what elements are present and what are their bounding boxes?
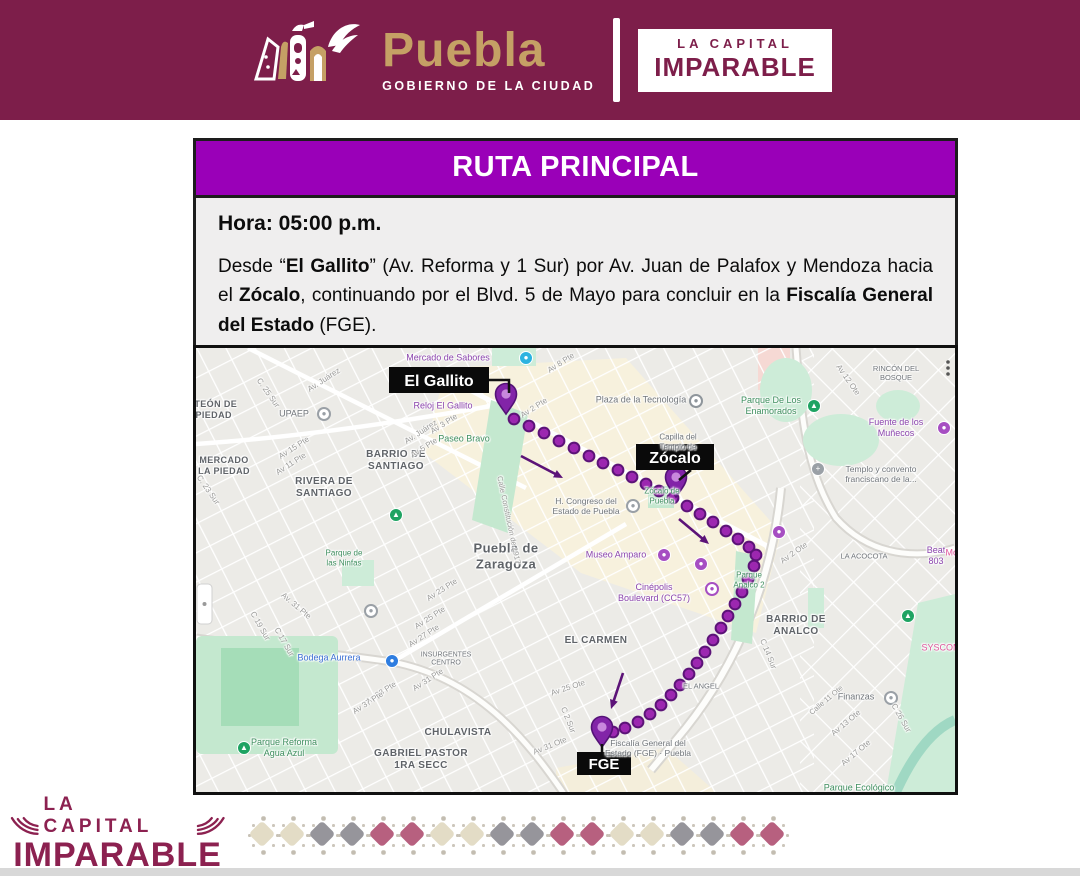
route-dot <box>708 635 719 646</box>
route-dot <box>539 428 550 439</box>
route-dot <box>645 709 656 720</box>
pattern-diamond-rose <box>367 808 397 860</box>
route-dot <box>584 451 595 462</box>
footer-logo-line1: LA CAPITAL <box>43 794 191 838</box>
pattern-diamond-rose <box>397 808 427 860</box>
map-poi-icon: ● <box>705 582 719 596</box>
brand-subtitle: GOBIERNO DE LA CIUDAD <box>382 79 595 93</box>
map-poi-icon: + <box>811 462 825 476</box>
decorative-pattern <box>247 808 787 860</box>
route-dot <box>751 550 762 561</box>
pattern-diamond-gray <box>517 808 547 860</box>
map-poi-icon: ● <box>364 604 378 618</box>
map-poi-icon: ● <box>772 525 786 539</box>
pattern-diamond-gray <box>667 808 697 860</box>
map-graphic: El GallitoZócaloFGE <box>196 348 955 792</box>
route-dot <box>569 443 580 454</box>
route-dot <box>700 647 711 658</box>
pattern-diamond-gray <box>307 808 337 860</box>
capital-imparable-badge: LA CAPITAL IMPARABLE <box>638 29 832 92</box>
route-title: RUTA PRINCIPAL <box>196 141 955 198</box>
route-dot <box>554 436 565 447</box>
map-poi-icon: ▲ <box>901 609 915 623</box>
pattern-diamond-cream <box>247 808 277 860</box>
pattern-diamond-gray <box>337 808 367 860</box>
pattern-diamond-rose <box>757 808 787 860</box>
brand-name: Puebla <box>382 27 595 75</box>
pattern-diamond-gray <box>487 808 517 860</box>
pattern-diamond-rose <box>577 808 607 860</box>
route-dot <box>716 623 727 634</box>
wing-left-icon <box>10 814 39 838</box>
route-card-body: Hora: 05:00 p.m. Desde “El Gallito” (Av.… <box>196 198 955 358</box>
pattern-diamond-gray <box>697 808 727 860</box>
header-divider <box>613 18 620 102</box>
callout-label: FGE <box>589 756 620 773</box>
route-dot <box>723 611 734 622</box>
route-dot <box>641 479 652 490</box>
route-dot <box>695 509 706 520</box>
map-poi-icon: ● <box>317 407 331 421</box>
pattern-diamond-cream <box>277 808 307 860</box>
route-dot <box>627 472 638 483</box>
badge-line2: IMPARABLE <box>654 52 816 83</box>
brand-text: Puebla GOBIERNO DE LA CIUDAD <box>382 27 595 93</box>
route-dot <box>666 690 677 701</box>
route-map[interactable]: El GallitoZócaloFGE ●●●▲●+●●●●●●▲●▲▲● Me… <box>193 345 958 795</box>
map-poi-icon: ▲ <box>237 741 251 755</box>
route-dot <box>730 599 741 610</box>
map-canvas: El GallitoZócaloFGE ●●●▲●+●●●●●●▲●▲▲● Me… <box>196 348 955 792</box>
route-dot <box>620 723 631 734</box>
route-description: Desde “El Gallito” (Av. Reforma y 1 Sur)… <box>218 252 933 340</box>
pattern-diamond-cream <box>637 808 667 860</box>
badge-line1: LA CAPITAL <box>677 36 793 51</box>
route-dot <box>684 669 695 680</box>
route-dot <box>721 526 732 537</box>
route-dot <box>737 587 748 598</box>
pattern-diamond-rose <box>727 808 757 860</box>
route-dot <box>749 561 760 572</box>
route-dot <box>613 465 624 476</box>
footer: LA CAPITAL IMPARABLE <box>0 800 1080 868</box>
route-time: Hora: 05:00 p.m. <box>218 212 933 236</box>
capital-imparable-logo: LA CAPITAL IMPARABLE <box>10 794 225 875</box>
pattern-diamond-cream <box>457 808 487 860</box>
map-left-control[interactable] <box>197 584 212 624</box>
puebla-brand: Puebla GOBIERNO DE LA CIUDAD <box>248 17 595 103</box>
route-dot <box>708 517 719 528</box>
header-banner: Puebla GOBIERNO DE LA CIUDAD LA CAPITAL … <box>0 0 1080 120</box>
map-poi-icon: ● <box>657 548 671 562</box>
route-dot <box>524 421 535 432</box>
map-poi-icon: ● <box>884 691 898 705</box>
route-dot <box>675 680 686 691</box>
map-options-control[interactable] <box>946 360 950 376</box>
route-dot <box>633 717 644 728</box>
route-card: RUTA PRINCIPAL Hora: 05:00 p.m. Desde “E… <box>193 138 958 361</box>
map-poi-icon: ● <box>385 654 399 668</box>
map-poi-icon: ● <box>689 394 703 408</box>
pattern-diamond-cream <box>427 808 457 860</box>
pattern-diamond-rose <box>547 808 577 860</box>
route-dot <box>733 534 744 545</box>
bottom-strip <box>0 868 1080 876</box>
route-dot <box>654 486 665 497</box>
map-poi-icon: ▲ <box>389 508 403 522</box>
map-poi-icon: ● <box>937 421 951 435</box>
callout-label: Zócalo <box>649 450 701 467</box>
wing-right-icon <box>196 814 225 838</box>
puebla-skyline-icon <box>248 17 368 103</box>
callout-label: El Gallito <box>404 373 474 390</box>
map-poi-icon: ● <box>626 499 640 513</box>
route-dot <box>598 458 609 469</box>
map-poi-icon: ▲ <box>807 399 821 413</box>
map-poi-icon: ● <box>519 351 533 365</box>
route-dot <box>743 574 754 585</box>
route-dot <box>692 658 703 669</box>
pattern-diamond-cream <box>607 808 637 860</box>
map-poi-icon: ● <box>694 557 708 571</box>
route-dot <box>509 414 520 425</box>
page: Puebla GOBIERNO DE LA CIUDAD LA CAPITAL … <box>0 0 1080 876</box>
route-dot <box>682 501 693 512</box>
route-dot <box>656 700 667 711</box>
